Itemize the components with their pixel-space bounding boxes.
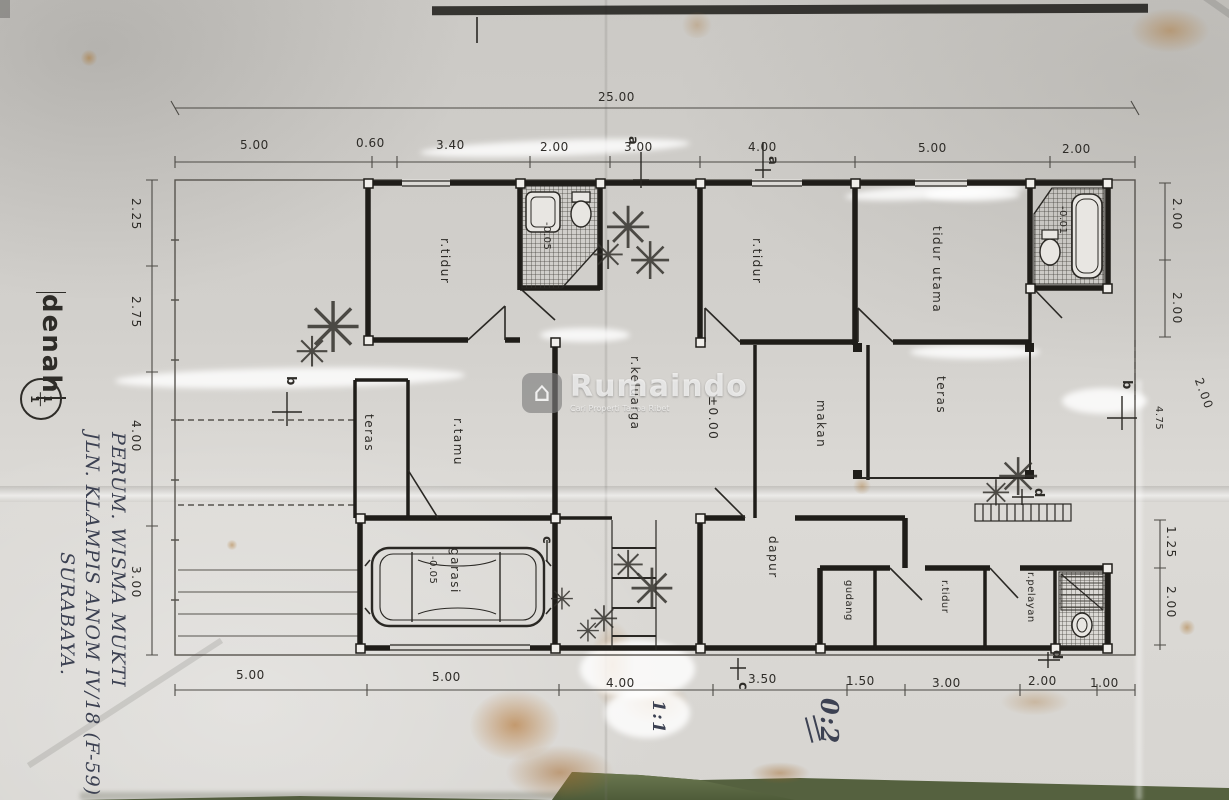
room-label-garage: garasi <box>448 548 462 594</box>
dim-bottom: 1.00 <box>1090 676 1119 690</box>
tree-icon <box>628 232 672 292</box>
room-label-bedroom-back: r.tidur <box>939 580 950 613</box>
scale-numerator: 1 <box>42 395 54 403</box>
tree-icon <box>591 233 625 279</box>
dim-bottom: 4.00 <box>606 676 635 690</box>
room-label-bedroom-middle: r.tidur <box>750 238 764 284</box>
tree-icon <box>981 474 1011 515</box>
dim-top: 2.00 <box>1062 142 1091 156</box>
section-marker-a: a <box>765 156 780 166</box>
handwritten-line: PERUM. WISMA MUKTI <box>104 432 130 796</box>
scale-fraction: 1 1 <box>29 392 53 406</box>
handwritten-line: SURABAYA. <box>53 432 79 796</box>
dim-top-total: 25.00 <box>598 90 635 104</box>
column-nodes <box>356 179 1112 653</box>
dim-left: 2.75 <box>129 296 143 329</box>
bathroom-front <box>522 186 598 288</box>
dim-right: 2.00 <box>1164 586 1178 619</box>
dim-left: 4.00 <box>129 420 143 453</box>
dim-right: 1.25 <box>1164 526 1178 559</box>
room-label-bedroom-front: r.tidur <box>438 238 452 284</box>
room-label-master-bedroom: tidur utama <box>930 226 944 313</box>
scale-denominator: 1 <box>29 392 42 406</box>
handwritten-address: PERUM. WISMA MUKTI JLN. KLAMPIS ANOM IV/… <box>53 432 130 796</box>
dim-bottom: 5.00 <box>236 668 265 682</box>
level-bath-master: -0.01 <box>1057 206 1068 234</box>
section-marker-b: b <box>1119 380 1134 391</box>
level-garage: -0.05 <box>427 556 438 584</box>
room-label-dining: makan <box>814 400 828 448</box>
dim-top: 3.40 <box>436 138 465 152</box>
room-label-maid: r.pelayan <box>1025 572 1036 623</box>
section-marker-c: c <box>539 536 554 545</box>
dim-left: 2.25 <box>129 198 143 231</box>
dim-left: 3.00 <box>129 566 143 599</box>
scale-symbol: 1 1 <box>20 378 62 420</box>
dim-top: 0.60 <box>356 136 385 150</box>
dim-bottom: 2.00 <box>1028 674 1057 688</box>
section-marker-a: a <box>625 136 640 146</box>
room-label-terrace-left: teras <box>362 414 376 452</box>
room-label-living: r.tamu <box>451 418 465 466</box>
watermark-text: Rumaindo Cari Properti Tanpa Ribet <box>570 372 748 413</box>
tree-icon <box>294 328 329 377</box>
room-label-terrace-right: teras <box>934 376 948 414</box>
dim-top: 4.00 <box>748 140 777 154</box>
dim-top: 2.00 <box>540 140 569 154</box>
handwritten-line: JLN. KLAMPIS ANOM IV/18 (F-59) <box>79 432 105 796</box>
watermark-tagline: Cari Properti Tanpa Ribet <box>570 404 748 413</box>
rumaindo-house-logo-icon: ⌂ <box>522 373 562 413</box>
dim-right: 2.00 <box>1170 198 1184 231</box>
watermark: ⌂ Rumaindo Cari Properti Tanpa Ribet <box>522 372 748 413</box>
dim-bottom: 3.00 <box>932 676 961 690</box>
tree-icon <box>611 543 645 589</box>
dim-bottom: 5.00 <box>432 670 461 684</box>
level-bath-front: -0.05 <box>541 222 552 250</box>
dim-top: 5.00 <box>240 138 269 152</box>
dim-top: 5.00 <box>918 141 947 155</box>
dim-right-offset: 4.75 <box>1153 406 1164 430</box>
tree-icon <box>575 615 600 650</box>
dim-bottom: 1.50 <box>846 674 875 688</box>
walls <box>360 181 1108 650</box>
tree-icon <box>549 583 574 618</box>
garage-door <box>390 643 530 653</box>
dim-bottom: 3.50 <box>748 672 777 686</box>
bathroom-master <box>1034 188 1104 284</box>
wc-back <box>1059 572 1105 646</box>
section-marker-b: b <box>283 376 298 387</box>
floor-plan-photo: 25.00 5.00 0.60 3.40 2.00 3.00 4.00 5.00… <box>0 0 1229 800</box>
section-marker-c: c <box>735 682 750 691</box>
handwritten-note: 1:1 <box>648 700 668 734</box>
dim-right: 2.00 <box>1170 292 1184 325</box>
section-marker-d: d <box>1049 650 1064 661</box>
room-label-kitchen: dapur <box>766 536 780 579</box>
room-label-storage: gudang <box>843 580 854 621</box>
watermark-brand: Rumaindo <box>570 372 748 402</box>
